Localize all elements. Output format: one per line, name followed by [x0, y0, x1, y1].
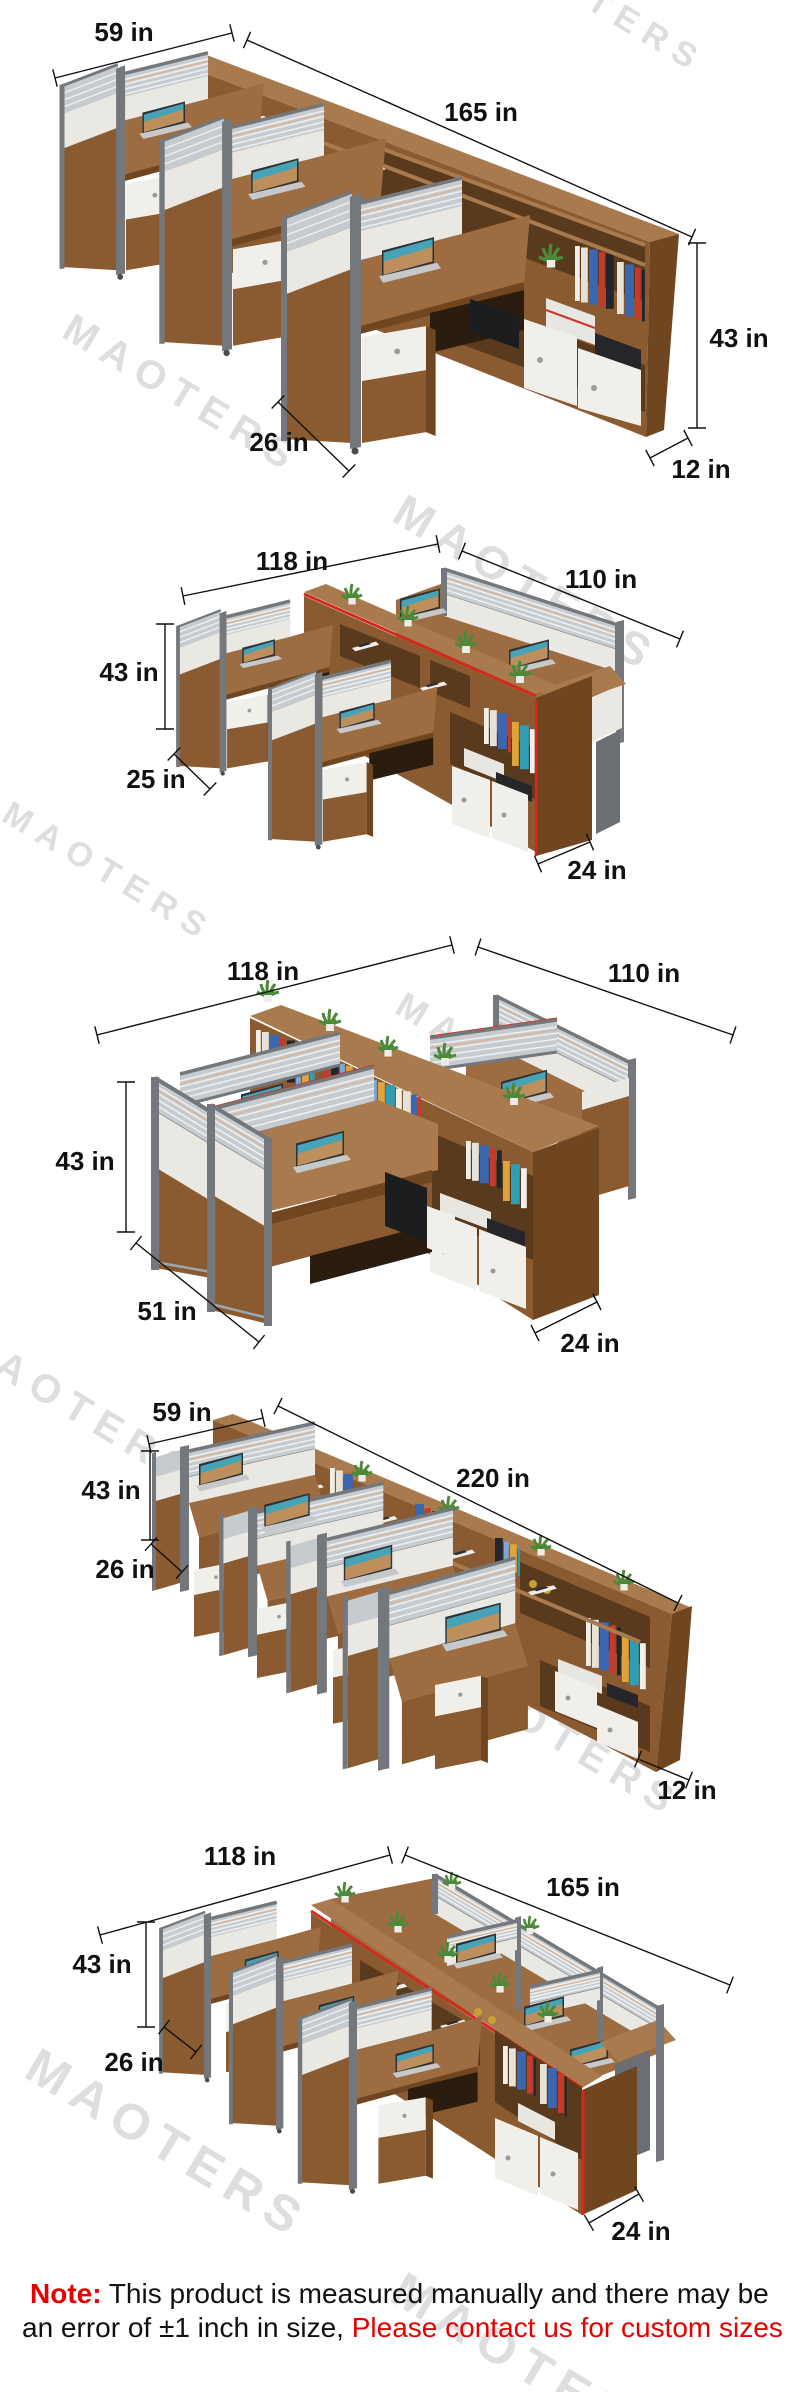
svg-text:43 in: 43 in: [99, 657, 158, 687]
svg-text:43 in: 43 in: [81, 1475, 140, 1505]
svg-text:24 in: 24 in: [611, 2216, 670, 2246]
svg-text:110 in: 110 in: [565, 564, 637, 594]
svg-text:26 in: 26 in: [249, 427, 308, 457]
svg-text:43 in: 43 in: [709, 323, 768, 353]
svg-text:165 in: 165 in: [444, 97, 518, 127]
svg-text:220 in: 220 in: [456, 1463, 530, 1493]
svg-text:59 in: 59 in: [94, 17, 153, 47]
svg-text:43 in: 43 in: [55, 1146, 114, 1176]
svg-text:51 in: 51 in: [137, 1296, 196, 1326]
svg-text:12 in: 12 in: [671, 454, 730, 484]
svg-text:an error of ±1 inch in size, P: an error of ±1 inch in size, Please cont…: [22, 2312, 783, 2343]
svg-text:24 in: 24 in: [560, 1328, 619, 1358]
svg-text:118 in: 118 in: [227, 956, 299, 986]
svg-text:Note: This product is measured: Note: This product is measured manually …: [30, 2278, 769, 2309]
svg-text:59 in: 59 in: [152, 1397, 211, 1427]
svg-text:118 in: 118 in: [204, 1841, 276, 1871]
svg-text:25 in: 25 in: [126, 764, 185, 794]
svg-text:26 in: 26 in: [95, 1554, 154, 1584]
svg-text:165 in: 165 in: [546, 1872, 620, 1902]
svg-text:12 in: 12 in: [657, 1775, 716, 1805]
svg-text:43 in: 43 in: [72, 1949, 131, 1979]
svg-text:110 in: 110 in: [608, 958, 680, 988]
svg-text:24 in: 24 in: [567, 855, 626, 885]
svg-text:26 in: 26 in: [104, 2047, 163, 2077]
svg-text:118 in: 118 in: [256, 546, 328, 576]
